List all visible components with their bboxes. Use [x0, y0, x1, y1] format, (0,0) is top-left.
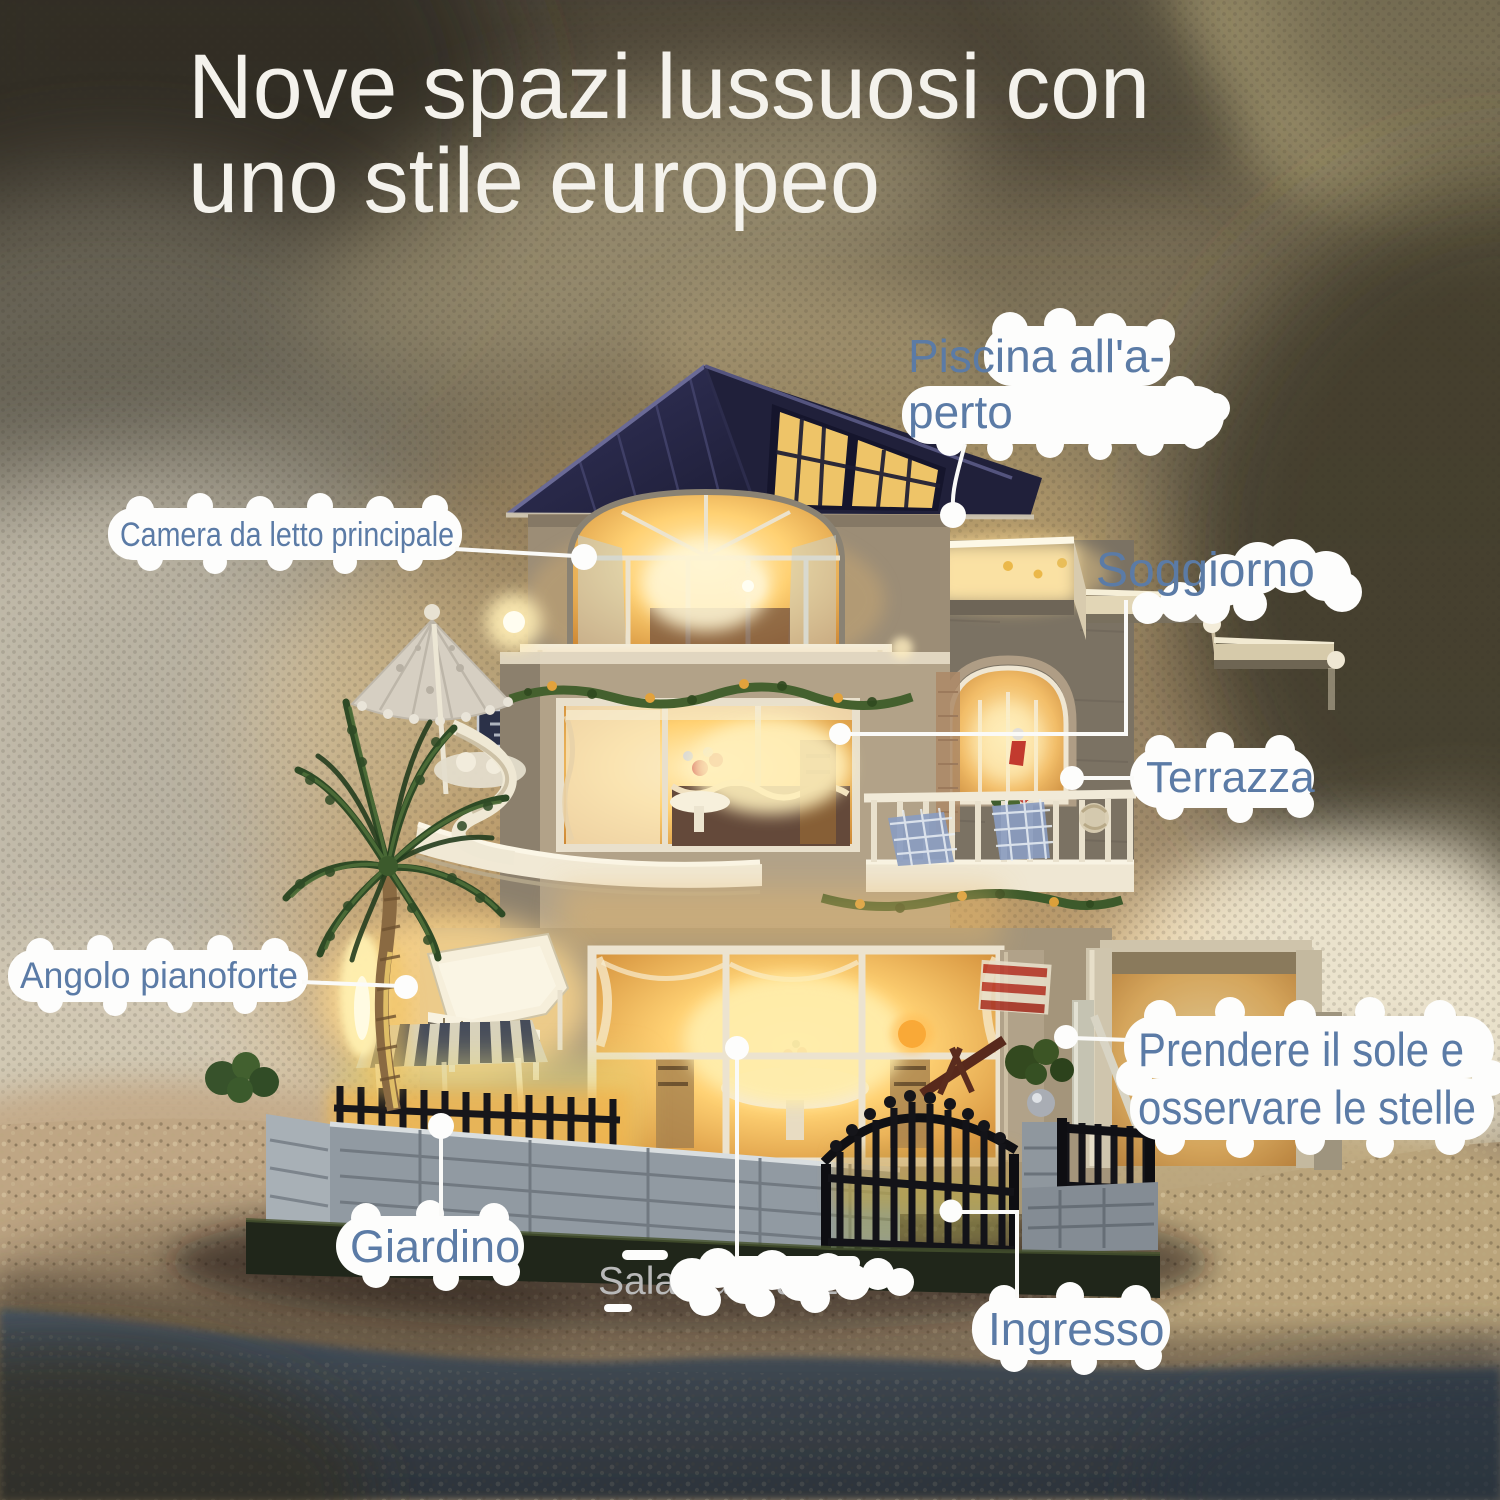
- svg-text:Terrazza: Terrazza: [1146, 753, 1315, 802]
- svg-text:Giardino: Giardino: [350, 1221, 520, 1272]
- svg-text:Prendere il sole e: Prendere il sole e: [1138, 1023, 1464, 1076]
- svg-text:Soggiorno: Soggiorno: [1096, 544, 1315, 597]
- svg-text:Camera da letto principale: Camera da letto principale: [120, 516, 454, 554]
- svg-text:perto: perto: [908, 386, 1013, 438]
- svg-text:osservare le stelle: osservare le stelle: [1138, 1081, 1476, 1134]
- svg-text:Ingresso: Ingresso: [988, 1303, 1164, 1355]
- svg-text:uno stile europeo: uno stile europeo: [188, 130, 880, 232]
- svg-text:Angolo pianoforte: Angolo pianoforte: [20, 955, 298, 996]
- svg-text:Piscina all'a-: Piscina all'a-: [908, 330, 1165, 382]
- svg-text:Nove spazi lussuosi con: Nove spazi lussuosi con: [188, 36, 1150, 138]
